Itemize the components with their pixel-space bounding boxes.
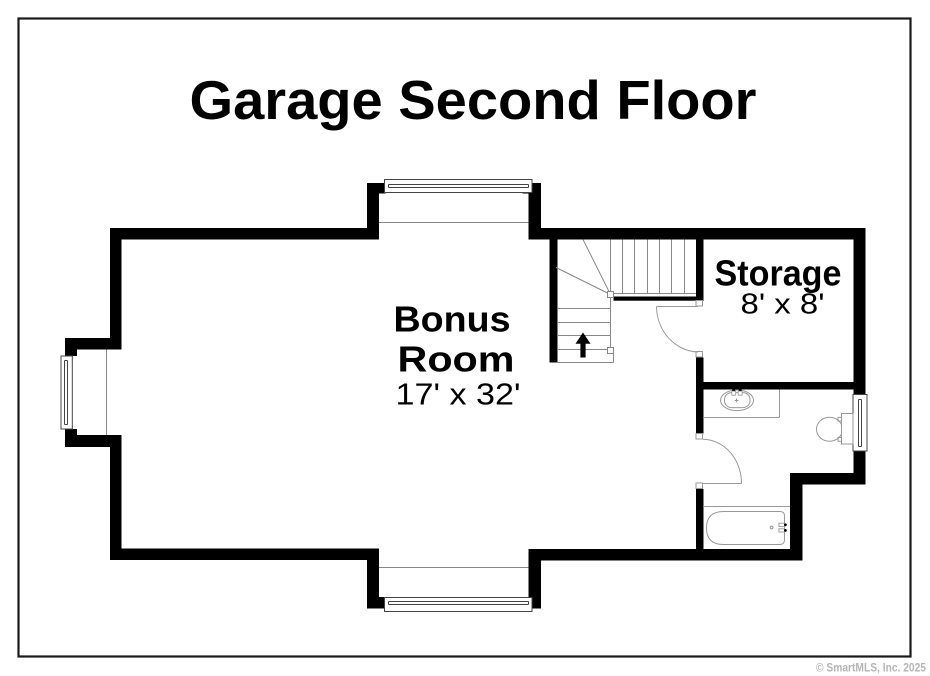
- svg-text:Bonus: Bonus: [394, 299, 511, 340]
- svg-text:© SmartMLS, Inc. 2025: © SmartMLS, Inc. 2025: [816, 661, 926, 675]
- svg-text:8' x 8': 8' x 8': [741, 289, 825, 321]
- svg-text:Garage Second Floor: Garage Second Floor: [190, 69, 757, 131]
- svg-text:Storage: Storage: [715, 253, 842, 294]
- svg-text:17' x 32': 17' x 32': [396, 377, 521, 412]
- svg-text:Room: Room: [398, 339, 515, 380]
